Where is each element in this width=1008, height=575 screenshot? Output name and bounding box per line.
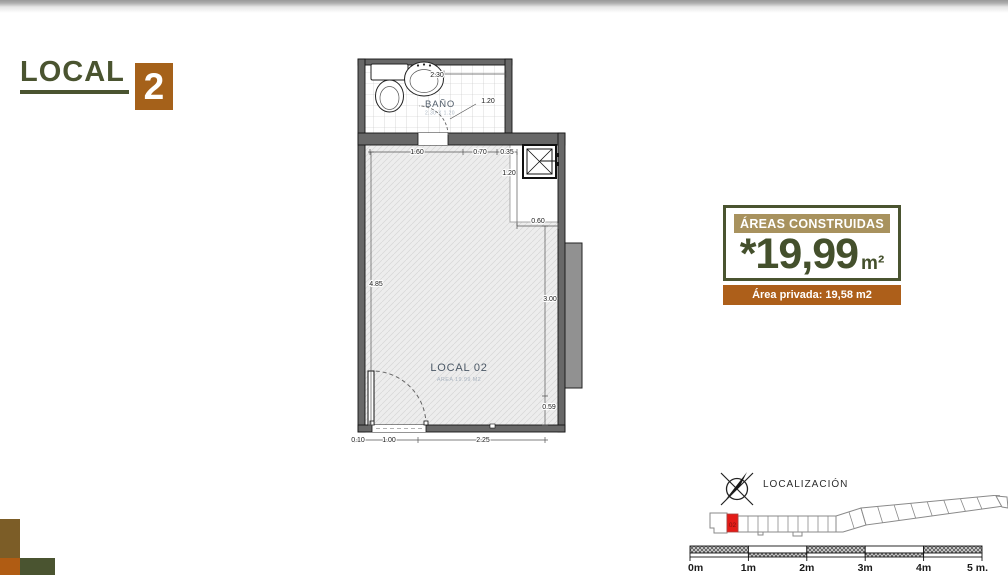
room-floor — [365, 145, 558, 425]
dim-left-height: 4.85 — [369, 281, 383, 288]
highlighted-unit-label: 02 — [729, 522, 737, 529]
dim-top-right: 0.35 — [500, 149, 514, 156]
scale-label-0: 0m — [688, 562, 703, 574]
shaft-box — [523, 145, 559, 178]
floor-plan: 2.30 1.20 1.60 0.70 0.35 1.20 0.60 4.85 … — [340, 50, 630, 450]
corner-block-brown — [0, 519, 20, 558]
area-unit: m² — [861, 254, 884, 273]
dim-top-left: 1.60 — [410, 149, 424, 156]
dim-bottom-left: 0.10 — [351, 437, 365, 444]
page-top-shadow — [0, 0, 1008, 14]
scale-label-1: 1m — [741, 562, 756, 574]
title-block: LOCAL 2 — [20, 57, 173, 110]
area-value: *19,99 — [740, 233, 858, 276]
bathroom-label: BAÑO — [425, 99, 455, 110]
areas-value: *19,99 m² — [726, 233, 898, 276]
room-area-label: AREA 19.99 M2 — [437, 377, 481, 383]
localization-label: LOCALIZACIÓN — [763, 479, 848, 490]
scale-label-4: 4m — [916, 562, 931, 574]
corner-block-green — [20, 558, 55, 575]
dim-shaft-width: 0.60 — [531, 218, 545, 225]
dim-bottom-right: 2.25 — [476, 437, 490, 444]
private-area-bar: Área privada: 19,58 m2 — [723, 285, 901, 305]
localization-map: 02 — [703, 495, 1008, 540]
scale-label-5: 5 m. — [967, 562, 988, 574]
dim-top-mid: 0.70 — [473, 149, 487, 156]
dim-bath-door: 1.20 — [481, 98, 495, 105]
room-label: LOCAL 02 — [430, 362, 487, 374]
page: LOCAL 2 — [0, 0, 1008, 575]
sink-icon — [405, 62, 444, 96]
dim-right-height: 3.00 — [543, 296, 557, 303]
dim-bath-width: 2.30 — [430, 72, 444, 79]
bathroom-dims-label: 2.30 X 1.20 — [425, 111, 455, 117]
local-number-badge: 2 — [135, 63, 173, 110]
areas-box: ÁREAS CONSTRUIDAS *19,99 m² — [723, 205, 901, 281]
dim-right-lower: 0.59 — [542, 404, 556, 411]
scale-label-2: 2m — [799, 562, 814, 574]
scale-label-3: 3m — [858, 562, 873, 574]
scale-bar: 0m 1m 2m 3m 4m 5 m. — [688, 544, 988, 574]
corner-block-orange — [0, 558, 20, 575]
page-title: LOCAL — [20, 57, 129, 94]
dim-shaft-height: 1.20 — [502, 170, 516, 177]
dim-bottom-door: 1.00 — [382, 437, 396, 444]
scale-bar-labels: 0m 1m 2m 3m 4m 5 m. — [688, 562, 988, 574]
